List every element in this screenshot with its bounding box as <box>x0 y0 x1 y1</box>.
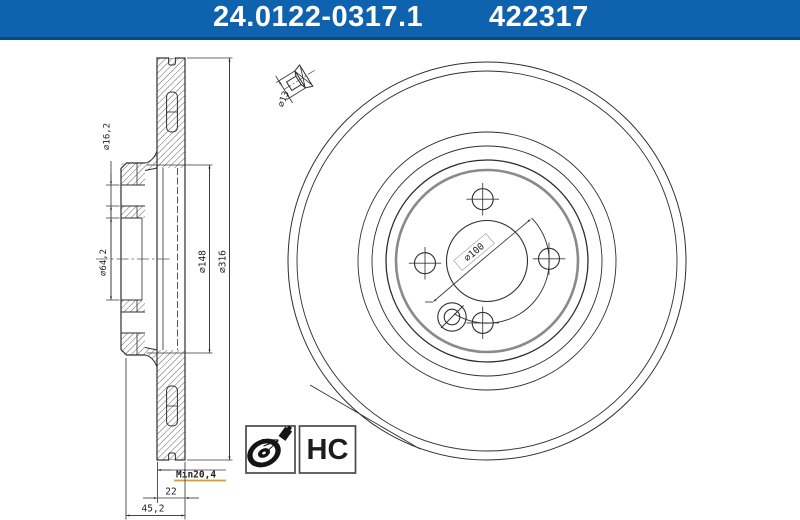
disc-outer-edge <box>288 62 686 460</box>
part-number: 24.0122-0317.1 <box>213 1 423 34</box>
coating-badges: HC <box>242 385 420 473</box>
dim-min-thickness-label: Min20,4 <box>176 470 216 481</box>
friction-ring-top-section <box>157 58 185 168</box>
bolt-circle-arc <box>454 218 549 323</box>
locating-pin-hole <box>438 303 466 331</box>
title-bar: 24.0122-0317.1 422317 <box>0 0 800 40</box>
dim-screw-head-label: ⌀13 <box>277 90 292 109</box>
side-section-view <box>96 56 185 462</box>
friction-ring-bottom-section <box>157 350 185 460</box>
hc-label: HC <box>307 434 349 466</box>
hat-ring <box>396 170 578 352</box>
dim-outer-label: ⌀316 <box>218 250 229 273</box>
ate-brake-disc-drawing: ⌀16,2 ⌀64,2 ⌀148 ⌀316 Min20,4 <box>0 0 800 520</box>
dim-bore-label: ⌀64,2 <box>99 249 109 276</box>
catalog-number: 422317 <box>489 1 589 34</box>
front-view: ⌀100 <box>288 62 686 460</box>
bolt-holes <box>409 183 565 339</box>
friction-surface-edge <box>297 71 677 451</box>
technical-drawing-canvas: ⌀16,2 ⌀64,2 ⌀148 ⌀316 Min20,4 <box>0 0 800 520</box>
dim-bolt-hole-label: ⌀16,2 <box>103 123 113 150</box>
dim-hat-label: ⌀148 <box>198 250 209 273</box>
dim-total-height-label: 45,2 <box>142 504 165 515</box>
set-screw-detail: ⌀13 <box>263 57 324 112</box>
dim-thickness-label: 22 <box>165 487 176 498</box>
